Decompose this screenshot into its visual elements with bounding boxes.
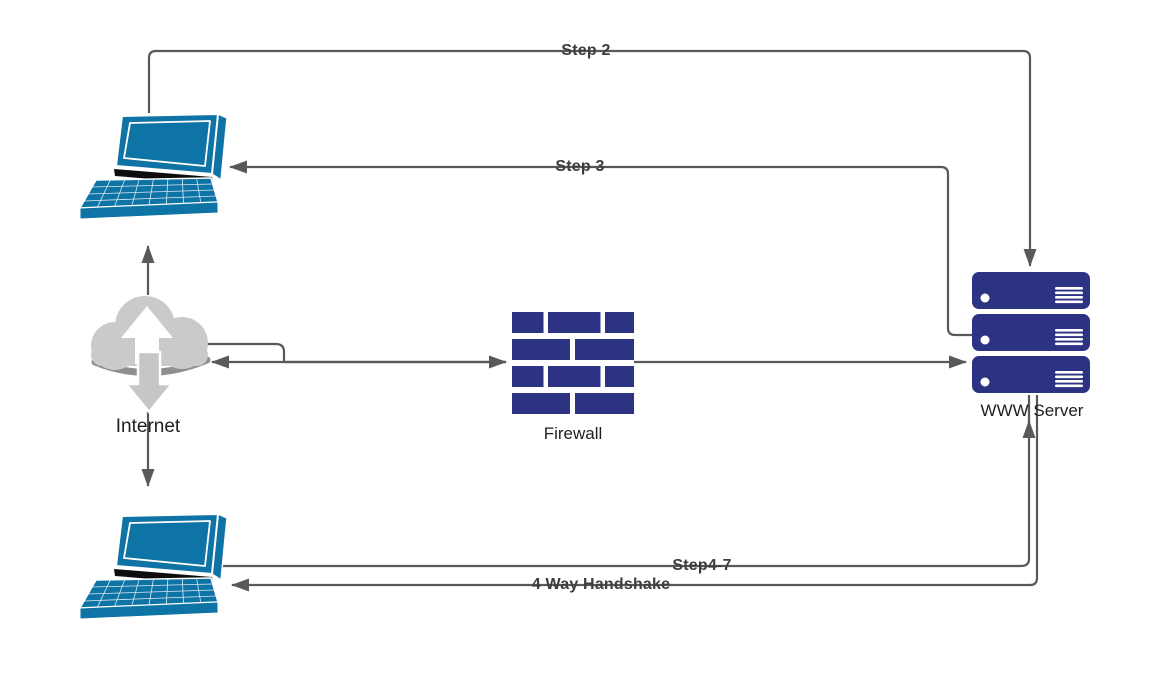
laptop-icon-top-client (72, 108, 230, 226)
node-label-firewall: Firewall (544, 424, 603, 444)
cloud-up-down-icon (85, 288, 217, 418)
server-stack-icon (972, 272, 1090, 394)
brick-wall-icon (512, 312, 634, 416)
edge-handshake-line (232, 395, 1037, 585)
edge-internet-bypass-line (206, 344, 284, 361)
edge-label-handshake: 4 Way Handshake (532, 576, 670, 594)
edge-label-step2: Step 2 (561, 42, 610, 60)
network-diagram-canvas: Step 2 Step 3 Step4-7 4 Way Handshake In… (0, 0, 1163, 695)
node-label-www-server: WWW Server (981, 401, 1084, 421)
edge-label-step47: Step4-7 (672, 557, 731, 575)
node-label-internet: Internet (116, 416, 180, 438)
edge-label-step3: Step 3 (555, 158, 604, 176)
laptop-icon-bottom-client (72, 508, 230, 626)
edge-step47-line (222, 421, 1029, 566)
edge-step3-line (230, 167, 972, 335)
